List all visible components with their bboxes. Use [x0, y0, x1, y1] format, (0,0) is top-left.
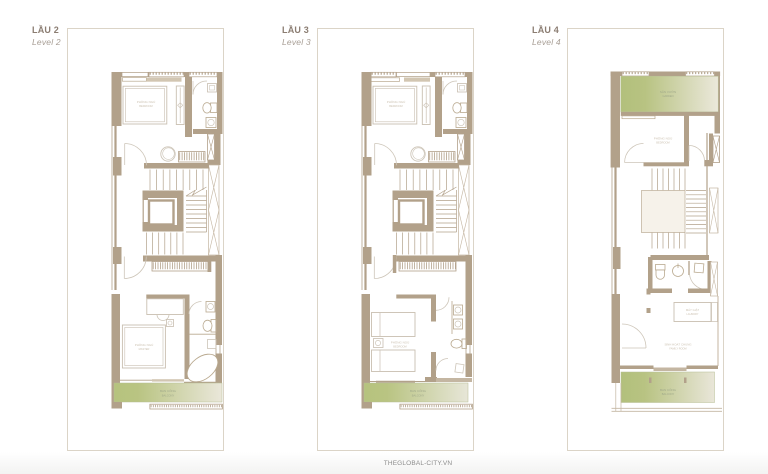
svg-text:BAN CÔNG: BAN CÔNG — [410, 388, 427, 393]
svg-text:FAMILY ROOM: FAMILY ROOM — [669, 348, 686, 351]
svg-text:SÂN VƯỜN: SÂN VƯỜN — [660, 89, 676, 94]
svg-text:BEDROOM: BEDROOM — [656, 141, 669, 145]
svg-text:BAN CÔNG: BAN CÔNG — [660, 387, 677, 392]
svg-text:BEDROOM: BEDROOM — [389, 104, 402, 108]
svg-text:PHÒNG NGỦ: PHÒNG NGỦ — [387, 99, 406, 104]
svg-text:GARDEN: GARDEN — [662, 94, 673, 98]
svg-text:PHÒNG NGỦ: PHÒNG NGỦ — [654, 136, 673, 141]
svg-text:SINH HOẠT CHUNG: SINH HOẠT CHUNG — [664, 343, 692, 347]
svg-text:BALCONY: BALCONY — [662, 392, 675, 396]
svg-text:BEDROOM: BEDROOM — [139, 104, 152, 108]
svg-text:BALCONY: BALCONY — [412, 394, 425, 398]
svg-text:MASTER: MASTER — [139, 347, 150, 351]
svg-text:PHÒNG NGỦ: PHÒNG NGỦ — [137, 99, 156, 104]
svg-text:MÁY GIẶT: MÁY GIẶT — [686, 308, 700, 312]
svg-text:BEDROOM: BEDROOM — [393, 345, 406, 349]
svg-text:LAUNDRY: LAUNDRY — [687, 313, 699, 316]
svg-text:PHÒNG NGỦ: PHÒNG NGỦ — [391, 340, 410, 345]
svg-text:PHÒNG NGỦ: PHÒNG NGỦ — [135, 342, 154, 347]
svg-text:BALCONY: BALCONY — [162, 394, 175, 398]
svg-text:BAN CÔNG: BAN CÔNG — [160, 388, 177, 393]
